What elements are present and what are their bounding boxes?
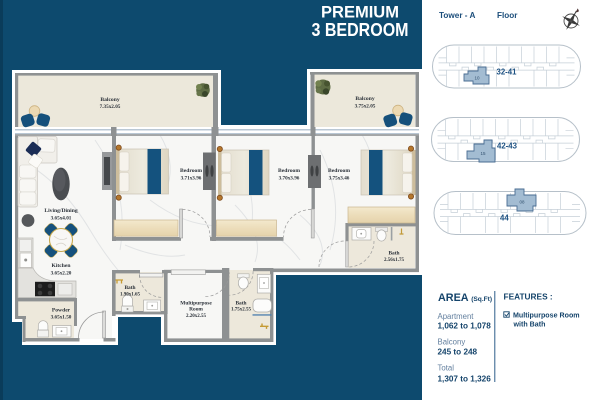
svg-text:3.75x2.05: 3.75x2.05 (355, 104, 376, 110)
svg-text:42-43: 42-43 (497, 142, 518, 151)
svg-text:3.65x1.50: 3.65x1.50 (51, 315, 72, 321)
svg-text:3 BEDROOM: 3 BEDROOM (312, 20, 409, 40)
svg-text:Bath: Bath (124, 285, 135, 291)
svg-text:2.20x2.55: 2.20x2.55 (186, 314, 207, 319)
svg-text:Balcony: Balcony (355, 96, 374, 102)
svg-text:Balcony: Balcony (100, 97, 119, 103)
svg-text:1,307 to 1,326: 1,307 to 1,326 (438, 375, 492, 384)
svg-text:7.35x2.05: 7.35x2.05 (100, 104, 121, 110)
svg-text:Bath: Bath (235, 301, 246, 307)
svg-text:1.75x2.55: 1.75x2.55 (231, 307, 252, 312)
svg-text:PREMIUM: PREMIUM (321, 2, 399, 21)
svg-text:Bedroom: Bedroom (328, 168, 350, 174)
svg-text:AREA (Sq.Ft): AREA (Sq.Ft) (438, 292, 492, 304)
svg-text:Living/Dining: Living/Dining (44, 208, 77, 214)
svg-text:3.75x3.46: 3.75x3.46 (329, 176, 350, 182)
svg-text:Total: Total (438, 364, 455, 373)
svg-text:1,062 to 1,078: 1,062 to 1,078 (438, 322, 492, 331)
svg-text:44: 44 (500, 214, 509, 223)
svg-text:15: 15 (480, 151, 486, 156)
svg-text:3.65x4.01: 3.65x4.01 (51, 216, 72, 222)
svg-text:3.70x3.96: 3.70x3.96 (279, 176, 300, 182)
svg-text:3.71x3.96: 3.71x3.96 (181, 176, 202, 182)
svg-text:Bath: Bath (388, 251, 399, 257)
svg-text:Floor: Floor (497, 11, 518, 20)
svg-text:1.90x1.65: 1.90x1.65 (120, 293, 141, 298)
svg-text:Powder: Powder (52, 308, 71, 314)
svg-text:08: 08 (519, 200, 525, 205)
svg-text:Kitchen: Kitchen (52, 263, 72, 269)
svg-text:Room: Room (189, 307, 203, 313)
svg-text:32-41: 32-41 (497, 68, 518, 77)
svg-text:Balcony: Balcony (438, 338, 466, 347)
svg-text:245 to 248: 245 to 248 (438, 348, 478, 357)
svg-text:2.56x1.75: 2.56x1.75 (384, 258, 405, 263)
svg-text:10: 10 (474, 76, 480, 81)
svg-text:with Bath: with Bath (513, 321, 546, 329)
svg-text:Multipurpose Room: Multipurpose Room (513, 312, 580, 320)
svg-text:Bedroom: Bedroom (278, 168, 300, 174)
svg-text:Bedroom: Bedroom (180, 168, 202, 174)
svg-text:Tower - A: Tower - A (439, 11, 475, 20)
svg-text:Apartment: Apartment (438, 312, 475, 321)
svg-text:FEATURES :: FEATURES : (504, 292, 553, 302)
svg-text:3.65x2.20: 3.65x2.20 (51, 271, 72, 277)
